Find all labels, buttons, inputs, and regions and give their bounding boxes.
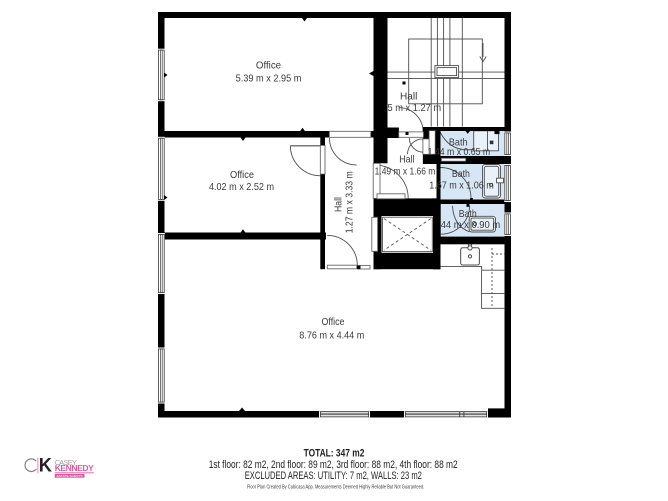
svg-text:ESTATE AGENTS: ESTATE AGENTS: [57, 474, 83, 478]
svg-text:EXCLUDED AREAS: UTILITY: 7 m2,: EXCLUDED AREAS: UTILITY: 7 m2, WALLS: 23…: [245, 470, 422, 482]
svg-text:Office: Office: [256, 61, 281, 72]
svg-text:Hall: Hall: [333, 197, 344, 212]
svg-text:Hall: Hall: [399, 155, 414, 166]
svg-text:5.39 m x 2.95 m: 5.39 m x 2.95 m: [236, 74, 302, 85]
svg-text:Bath: Bath: [459, 209, 477, 220]
svg-text:1.67 m x 1.06 m: 1.67 m x 1.06 m: [429, 180, 494, 191]
svg-text:Office: Office: [322, 317, 345, 328]
svg-text:TOTAL: 347 m2: TOTAL: 347 m2: [304, 448, 365, 460]
svg-text:KENNEDY: KENNEDY: [55, 463, 94, 473]
svg-text:1.27 m x 3.33 m: 1.27 m x 3.33 m: [345, 171, 356, 233]
svg-text:8.76 m x 4.44 m: 8.76 m x 4.44 m: [299, 331, 364, 342]
svg-text:Hall: Hall: [400, 92, 417, 103]
svg-text:Bath: Bath: [452, 169, 470, 180]
svg-text:44 m x 0.90 m: 44 m x 0.90 m: [441, 220, 501, 231]
svg-text:Floor Plan Created By Cubicasa: Floor Plan Created By Cubicasa App. Meas…: [247, 484, 424, 490]
svg-text:K: K: [39, 455, 52, 476]
svg-text:Office: Office: [230, 170, 254, 181]
svg-text:4.02 m x 2.52 m: 4.02 m x 2.52 m: [209, 182, 274, 193]
svg-text:5 m x 1.27 m: 5 m x 1.27 m: [388, 103, 442, 114]
svg-text:1.44 m x 0.65 m: 1.44 m x 0.65 m: [428, 147, 491, 158]
svg-text:1.49 m x 1.66 m: 1.49 m x 1.66 m: [375, 167, 436, 178]
